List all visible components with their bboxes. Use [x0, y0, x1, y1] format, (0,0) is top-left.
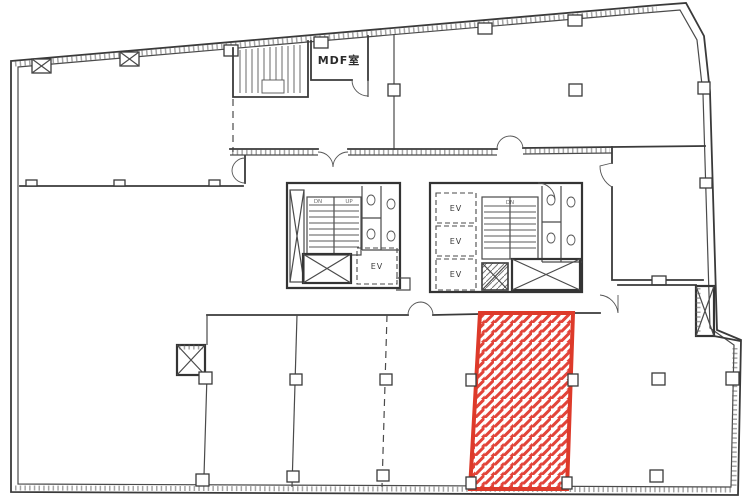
- double-door-east: [497, 136, 523, 149]
- double-door-south-corridor: [408, 302, 433, 315]
- highlighted-unit: [466, 313, 578, 489]
- partition-west: [177, 315, 212, 486]
- east-area-columns: [650, 372, 739, 482]
- east-shaft-box: [696, 286, 714, 336]
- west-shaft-box: [177, 345, 205, 375]
- right-core-elevator-2: EV: [436, 226, 476, 256]
- core-entry-door: [538, 183, 555, 200]
- right-core: EV EV EV DN: [430, 183, 582, 292]
- partition-center-solid: [287, 315, 302, 487]
- freestanding-column: [569, 84, 582, 96]
- right-core-service-box: [482, 263, 508, 290]
- elevator-label: EV: [450, 270, 463, 279]
- elevator-label: EV: [371, 262, 384, 271]
- building-outer-wall: [11, 3, 741, 495]
- elevator-label: EV: [450, 237, 463, 246]
- elevator-label: EV: [450, 204, 463, 213]
- stair-dn-label: DN: [314, 199, 322, 205]
- right-core-stair: DN: [482, 197, 538, 259]
- mdf-room-label: MDF室: [318, 53, 361, 67]
- right-core-elevator-3: EV: [436, 259, 476, 290]
- stair-dn-label: DN: [506, 200, 514, 206]
- right-middle-room: [600, 146, 705, 285]
- right-core-elevator-1: EV: [436, 193, 476, 223]
- left-core: DN UP EV: [287, 183, 410, 290]
- double-door-west: [318, 152, 348, 167]
- room-door: [600, 163, 612, 187]
- right-core-shaft-box: [512, 259, 580, 290]
- floor-plan-page: MDF室: [0, 0, 749, 502]
- partition-center-dashed: [377, 315, 392, 487]
- stair-up-label: UP: [345, 199, 353, 205]
- left-core-shaft: [290, 190, 304, 282]
- upper-stairwell: [233, 41, 308, 152]
- column: [388, 84, 400, 96]
- right-core-restrooms: [542, 186, 582, 262]
- left-core-restrooms: [362, 186, 400, 250]
- left-core-elevator: EV: [357, 248, 397, 284]
- floor-plan-drawing: MDF室: [0, 0, 749, 502]
- corridor-north-wall: [230, 136, 612, 167]
- left-core-stair: DN UP: [307, 197, 361, 255]
- left-core-shaft-box: [303, 254, 351, 283]
- upper-stair-treads: [240, 45, 300, 93]
- left-wing-north-wall: [20, 156, 245, 186]
- east-area-door: [600, 295, 618, 313]
- swing-door: [232, 158, 245, 183]
